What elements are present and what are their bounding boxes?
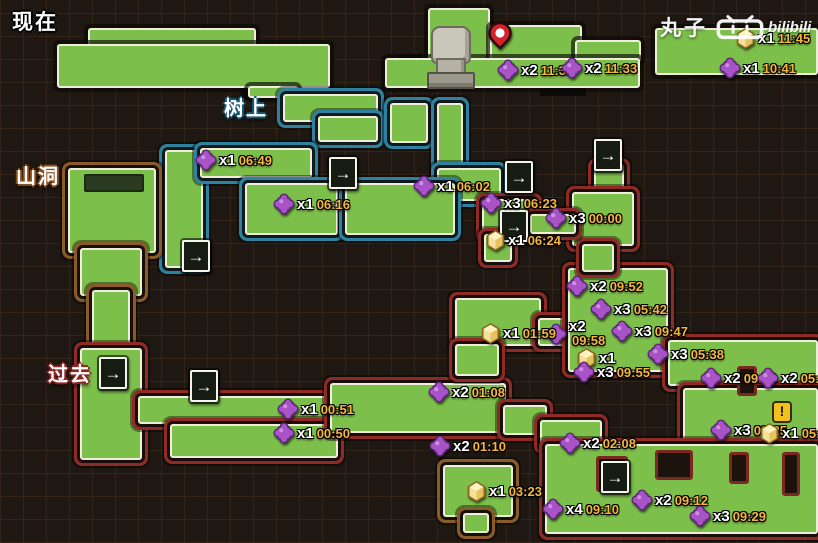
marker-time: 02:08 bbox=[603, 436, 636, 451]
marker-time: 05:38 bbox=[691, 347, 724, 362]
marker-honey: x106:24 bbox=[485, 229, 561, 252]
map-canvas: x211:36x211:33x111:45x110:41x106:49x106:… bbox=[0, 0, 818, 543]
platform-tree bbox=[318, 116, 378, 142]
honey-icon bbox=[480, 322, 501, 345]
marker-count: x2 bbox=[583, 435, 600, 452]
cave-door-detail bbox=[84, 174, 144, 192]
puzzle-icon bbox=[631, 489, 653, 511]
marker-count: x3 bbox=[504, 195, 521, 212]
puzzle-icon bbox=[195, 149, 217, 171]
marker-puzzle: x205:33 bbox=[757, 367, 818, 389]
marker-time: 01:59 bbox=[523, 326, 556, 341]
marker-count: x2 bbox=[569, 320, 586, 334]
marker-time: 09:29 bbox=[733, 509, 766, 524]
marker-arrow: → bbox=[182, 240, 210, 272]
marker-time: 01:08 bbox=[472, 385, 505, 400]
puzzle-icon bbox=[689, 505, 711, 527]
marker-time: 11:33 bbox=[605, 61, 638, 76]
marker-time: 00:51 bbox=[321, 402, 354, 417]
marker-puzzle: x309:55 bbox=[573, 361, 650, 383]
marker-puzzle: x106:02 bbox=[413, 175, 490, 197]
puzzle-icon bbox=[561, 57, 583, 79]
marker-arrow: → bbox=[594, 139, 622, 171]
marker-time: 05:31 bbox=[802, 426, 818, 441]
platform-tree bbox=[390, 103, 428, 143]
marker-count: x3 bbox=[734, 422, 751, 439]
marker-count: x1 bbox=[782, 425, 799, 442]
marker-count: x2 bbox=[521, 62, 538, 79]
bilibili-logo-icon bbox=[714, 14, 766, 40]
marker-honey: !x105:31 bbox=[759, 422, 818, 445]
marker-puzzle: x106:16 bbox=[273, 193, 350, 215]
marker-time: 06:16 bbox=[317, 197, 350, 212]
pin-icon bbox=[487, 22, 513, 54]
marker-count: x4 bbox=[566, 501, 583, 518]
alert-icon: ! bbox=[772, 401, 792, 423]
marker-pin bbox=[487, 22, 513, 54]
puzzle-icon bbox=[545, 207, 567, 229]
statue bbox=[424, 26, 476, 88]
marker-count: x2 bbox=[452, 384, 469, 401]
puzzle-icon bbox=[611, 320, 633, 342]
honey-icon bbox=[759, 422, 780, 445]
puzzle-icon bbox=[497, 59, 519, 81]
marker-puzzle: x305:38 bbox=[647, 343, 724, 365]
arrow-icon: → bbox=[505, 161, 533, 193]
arrow-icon: → bbox=[329, 157, 357, 189]
region-label-now: 现在 bbox=[12, 6, 58, 36]
marker-time: 00:00 bbox=[589, 211, 622, 226]
platform-cave bbox=[80, 248, 142, 296]
statue-base bbox=[427, 72, 475, 89]
arrow-icon: → bbox=[190, 370, 218, 402]
marker-time: 06:24 bbox=[528, 233, 561, 248]
marker-puzzle: x305:42 bbox=[590, 298, 667, 320]
region-label-tree: 树上 bbox=[224, 92, 268, 121]
marker-count: x2 bbox=[781, 370, 798, 387]
marker-time: 09:47 bbox=[655, 324, 688, 339]
marker-arrow: → bbox=[329, 157, 357, 189]
puzzle-icon bbox=[710, 419, 732, 441]
marker-count: x3 bbox=[635, 323, 652, 340]
marker-puzzle: x409:10 bbox=[542, 498, 619, 520]
watermark: 丸子 bilibili bbox=[660, 12, 811, 42]
marker-count: x2 bbox=[724, 370, 741, 387]
puzzle-icon bbox=[573, 361, 595, 383]
arrow-icon: → bbox=[601, 461, 629, 493]
platform-now bbox=[57, 44, 330, 88]
arrow-icon: → bbox=[99, 357, 127, 389]
puzzle-icon bbox=[277, 398, 299, 420]
marker-puzzle: x201:08 bbox=[428, 381, 505, 403]
puzzle-icon bbox=[700, 367, 722, 389]
maze-slot bbox=[729, 452, 749, 484]
honey-icon bbox=[485, 229, 506, 252]
puzzle-icon bbox=[590, 298, 612, 320]
puzzle-icon bbox=[429, 435, 451, 457]
marker-puzzle: x209:52 bbox=[566, 275, 643, 297]
marker-count: x1 bbox=[508, 232, 525, 249]
puzzle-icon bbox=[273, 422, 295, 444]
marker-time: 10:41 bbox=[763, 61, 796, 76]
marker-time: 09:10 bbox=[586, 502, 619, 517]
marker-arrow: → bbox=[190, 370, 218, 402]
puzzle-icon bbox=[559, 432, 581, 454]
maze-slot bbox=[782, 452, 800, 496]
marker-count: x1 bbox=[301, 401, 318, 418]
marker-time: 03:23 bbox=[509, 484, 542, 499]
marker-time: 09:52 bbox=[610, 279, 643, 294]
platform-cave bbox=[92, 290, 130, 352]
marker-time: 00:50 bbox=[317, 426, 350, 441]
marker-count: x1 bbox=[297, 196, 314, 213]
marker-puzzle: x202:08 bbox=[559, 432, 636, 454]
puzzle-icon bbox=[719, 57, 741, 79]
puzzle-icon bbox=[542, 498, 564, 520]
marker-puzzle: x309:47 bbox=[611, 320, 688, 342]
puzzle-icon bbox=[647, 343, 669, 365]
region-label-past: 过去 bbox=[48, 358, 92, 387]
marker-time: 05:42 bbox=[634, 302, 667, 317]
marker-honey: x103:23 bbox=[466, 480, 542, 503]
arrow-icon: → bbox=[594, 139, 622, 171]
platform-past bbox=[582, 244, 614, 272]
puzzle-icon bbox=[428, 381, 450, 403]
marker-count: x2 bbox=[655, 492, 672, 509]
marker-puzzle: x201:10 bbox=[429, 435, 506, 457]
puzzle-icon bbox=[566, 275, 588, 297]
marker-time: 09:58 bbox=[572, 334, 605, 348]
marker-count: x2 bbox=[453, 438, 470, 455]
marker-puzzle: x106:49 bbox=[195, 149, 272, 171]
marker-count: x1 bbox=[437, 178, 454, 195]
platform-past bbox=[455, 344, 499, 376]
puzzle-icon bbox=[273, 193, 295, 215]
marker-puzzle: x100:50 bbox=[273, 422, 350, 444]
marker-arrow: → bbox=[601, 461, 629, 493]
platform-honey-room bbox=[463, 513, 489, 533]
puzzle-icon bbox=[480, 192, 502, 214]
marker-time: 09:55 bbox=[617, 365, 650, 380]
marker-count: x3 bbox=[569, 210, 586, 227]
marker-count: x2 bbox=[585, 60, 602, 77]
marker-count: x2 bbox=[590, 278, 607, 295]
marker-puzzle: x309:29 bbox=[689, 505, 766, 527]
marker-arrow: → bbox=[505, 161, 533, 193]
region-label-cave: 山洞 bbox=[16, 160, 60, 189]
marker-count: x1 bbox=[219, 152, 236, 169]
marker-time: 01:10 bbox=[473, 439, 506, 454]
watermark-brand: bilibili bbox=[768, 19, 811, 36]
watermark-author: 丸子 bbox=[660, 12, 708, 42]
marker-time: 05:33 bbox=[801, 371, 818, 386]
marker-puzzle: x211:33 bbox=[561, 57, 637, 79]
marker-count: x1 bbox=[297, 425, 314, 442]
marker-honey: x101:59 bbox=[480, 322, 556, 345]
marker-puzzle: x300:00 bbox=[545, 207, 622, 229]
marker-puzzle: x100:51 bbox=[277, 398, 354, 420]
marker-puzzle: x110:41 bbox=[719, 57, 796, 79]
marker-time: 06:49 bbox=[239, 153, 272, 168]
honey-icon bbox=[466, 480, 487, 503]
marker-count: x1 bbox=[489, 483, 506, 500]
marker-count: x3 bbox=[671, 346, 688, 363]
marker-count: x1 bbox=[503, 325, 520, 342]
marker-count: x1 bbox=[743, 60, 760, 77]
arrow-icon: → bbox=[182, 240, 210, 272]
puzzle-icon bbox=[757, 367, 779, 389]
puzzle-icon bbox=[413, 175, 435, 197]
marker-count: x3 bbox=[713, 508, 730, 525]
marker-count: x3 bbox=[597, 364, 614, 381]
maze-slot bbox=[655, 450, 693, 480]
marker-arrow: → bbox=[99, 357, 127, 389]
marker-count: x3 bbox=[614, 301, 631, 318]
